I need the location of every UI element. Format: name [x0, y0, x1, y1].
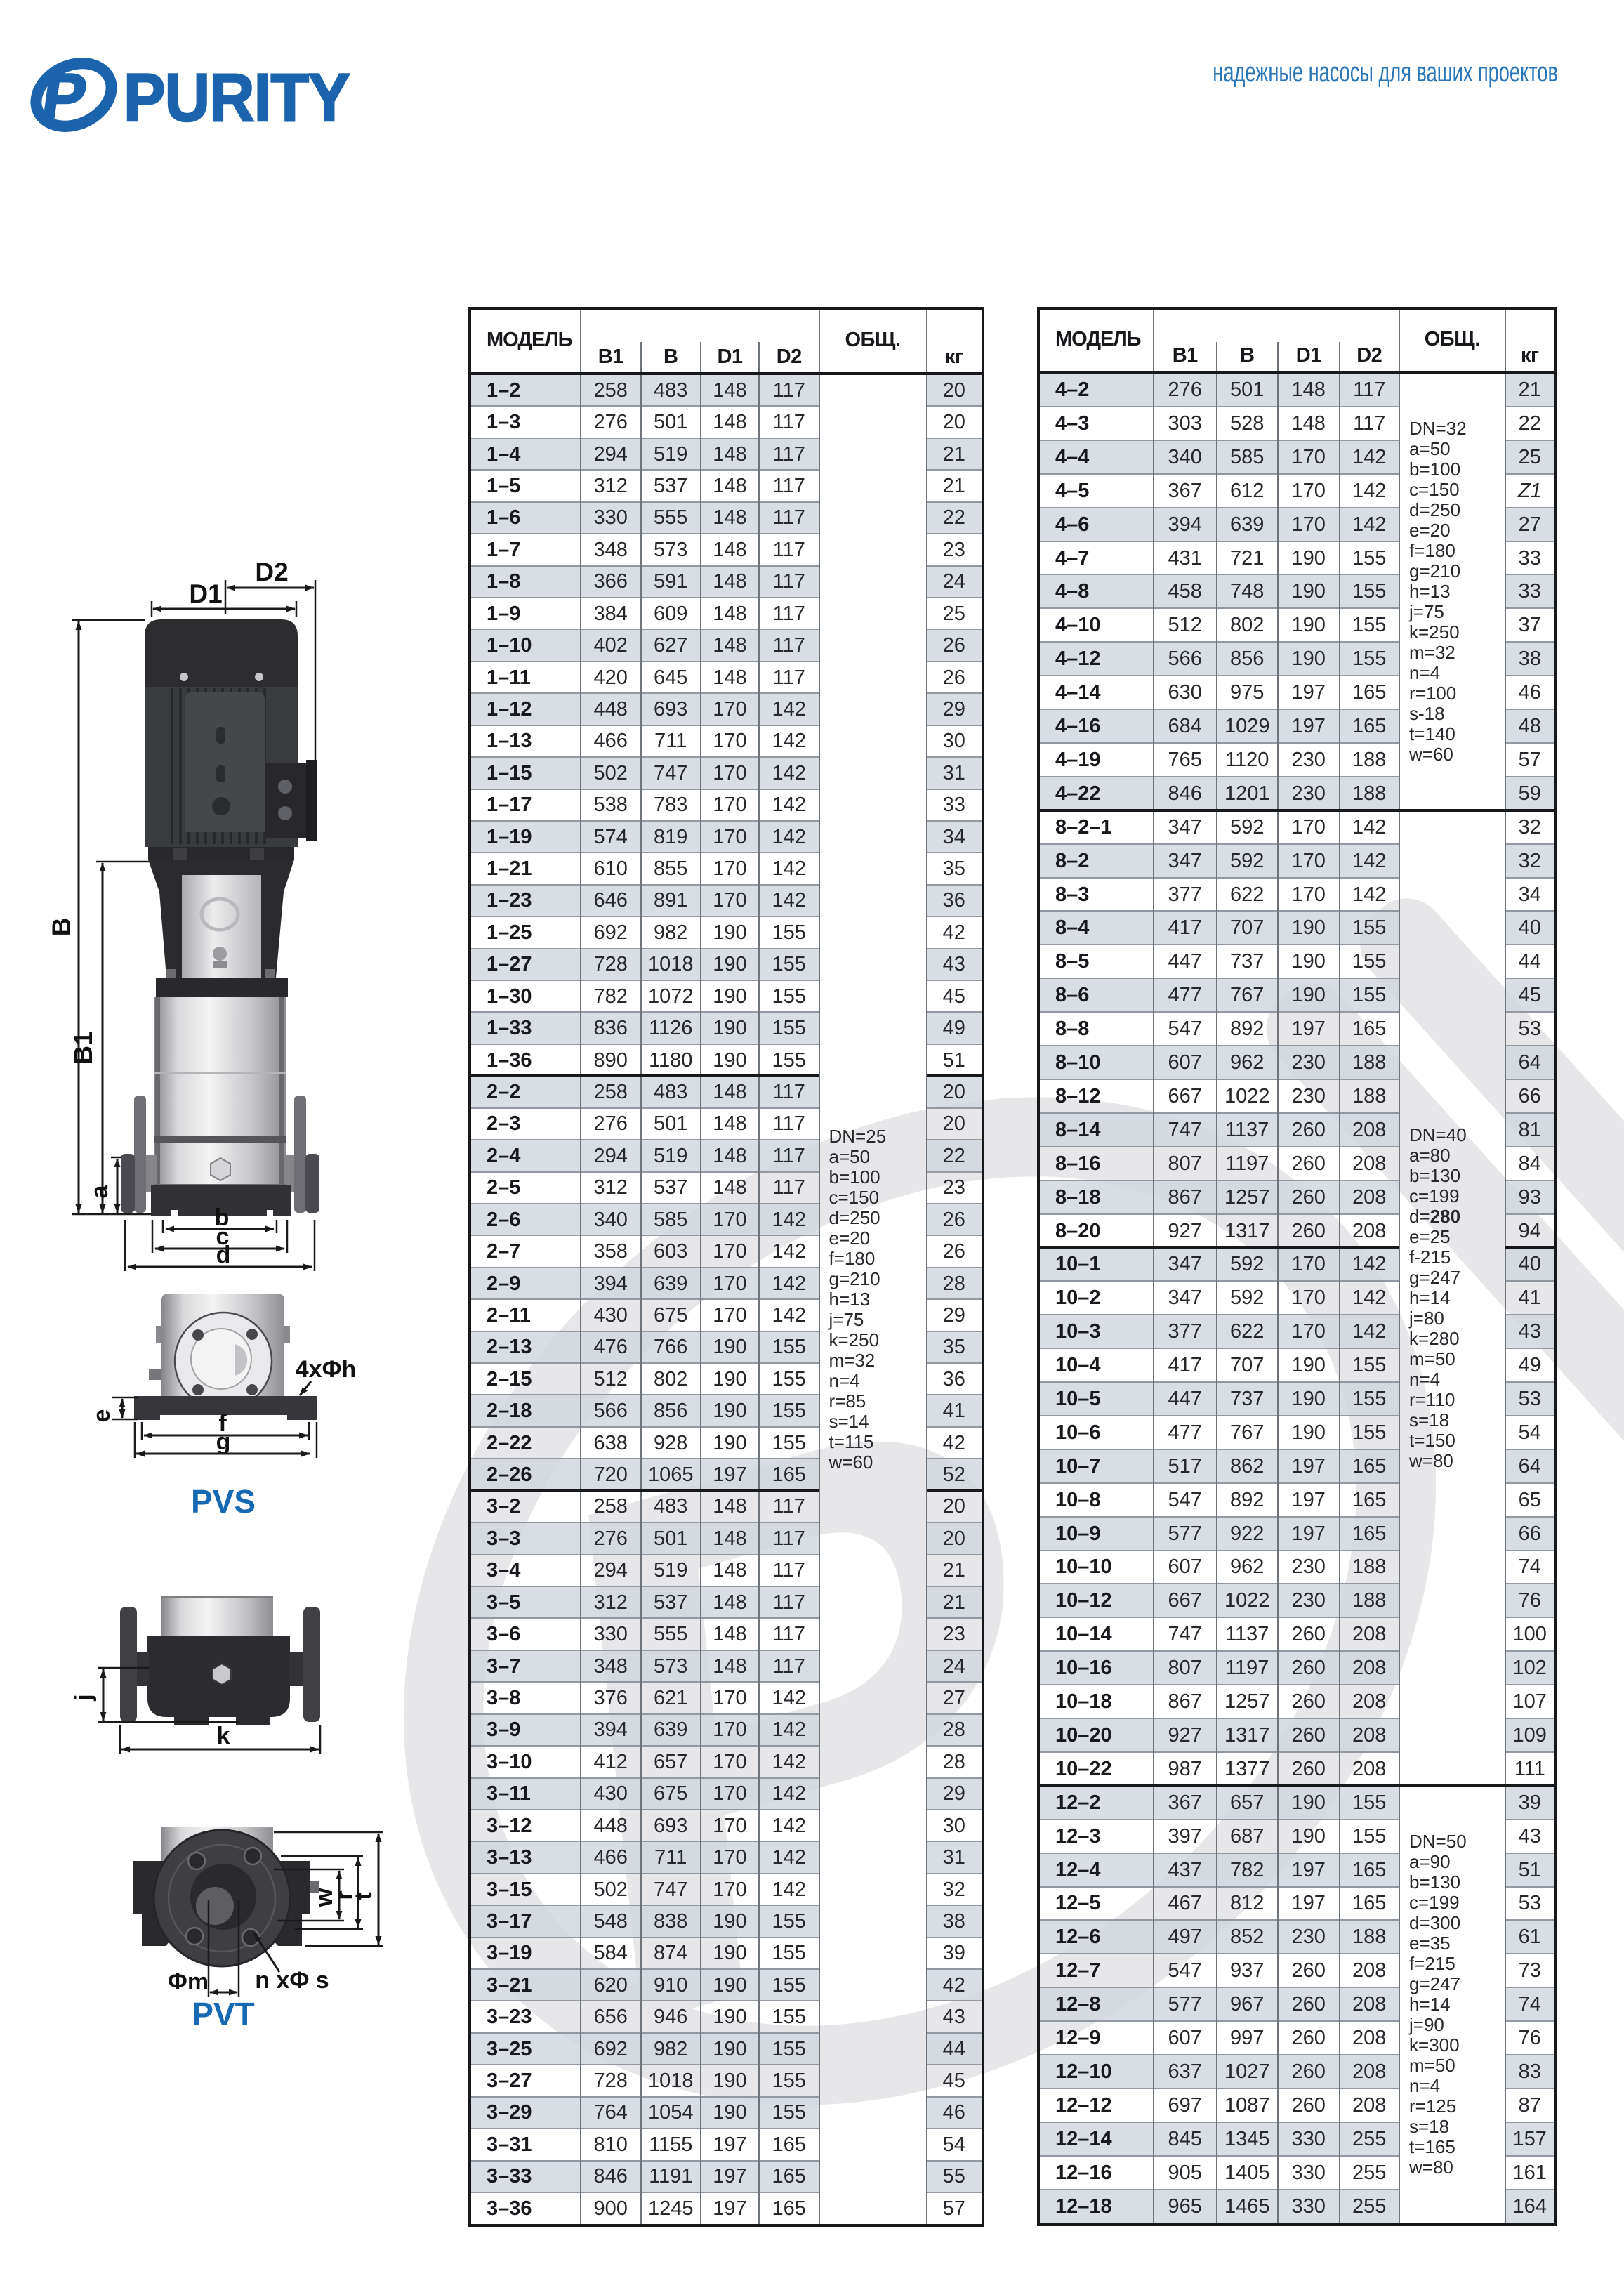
svg-text:D2: D2	[255, 558, 288, 586]
svg-text:Φm: Φm	[168, 1968, 209, 1995]
svg-text:D1: D1	[189, 579, 222, 608]
svg-text:4xΦh: 4xΦh	[296, 1356, 357, 1383]
svg-text:g: g	[216, 1428, 231, 1455]
svg-text:PURITY: PURITY	[124, 60, 350, 136]
svg-text:e: e	[88, 1409, 115, 1423]
svg-text:B: B	[47, 918, 76, 937]
svg-text:d: d	[216, 1242, 231, 1268]
svg-text:PVS: PVS	[191, 1483, 256, 1520]
svg-text:j: j	[70, 1694, 97, 1701]
svg-text:n xΦ s: n xΦ s	[255, 1967, 329, 1994]
svg-text:k: k	[217, 1723, 230, 1749]
svg-text:B1: B1	[69, 1031, 98, 1064]
svg-text:a: a	[86, 1184, 113, 1198]
svg-text:t: t	[350, 1892, 377, 1900]
svg-text:PVT: PVT	[192, 1996, 254, 2032]
